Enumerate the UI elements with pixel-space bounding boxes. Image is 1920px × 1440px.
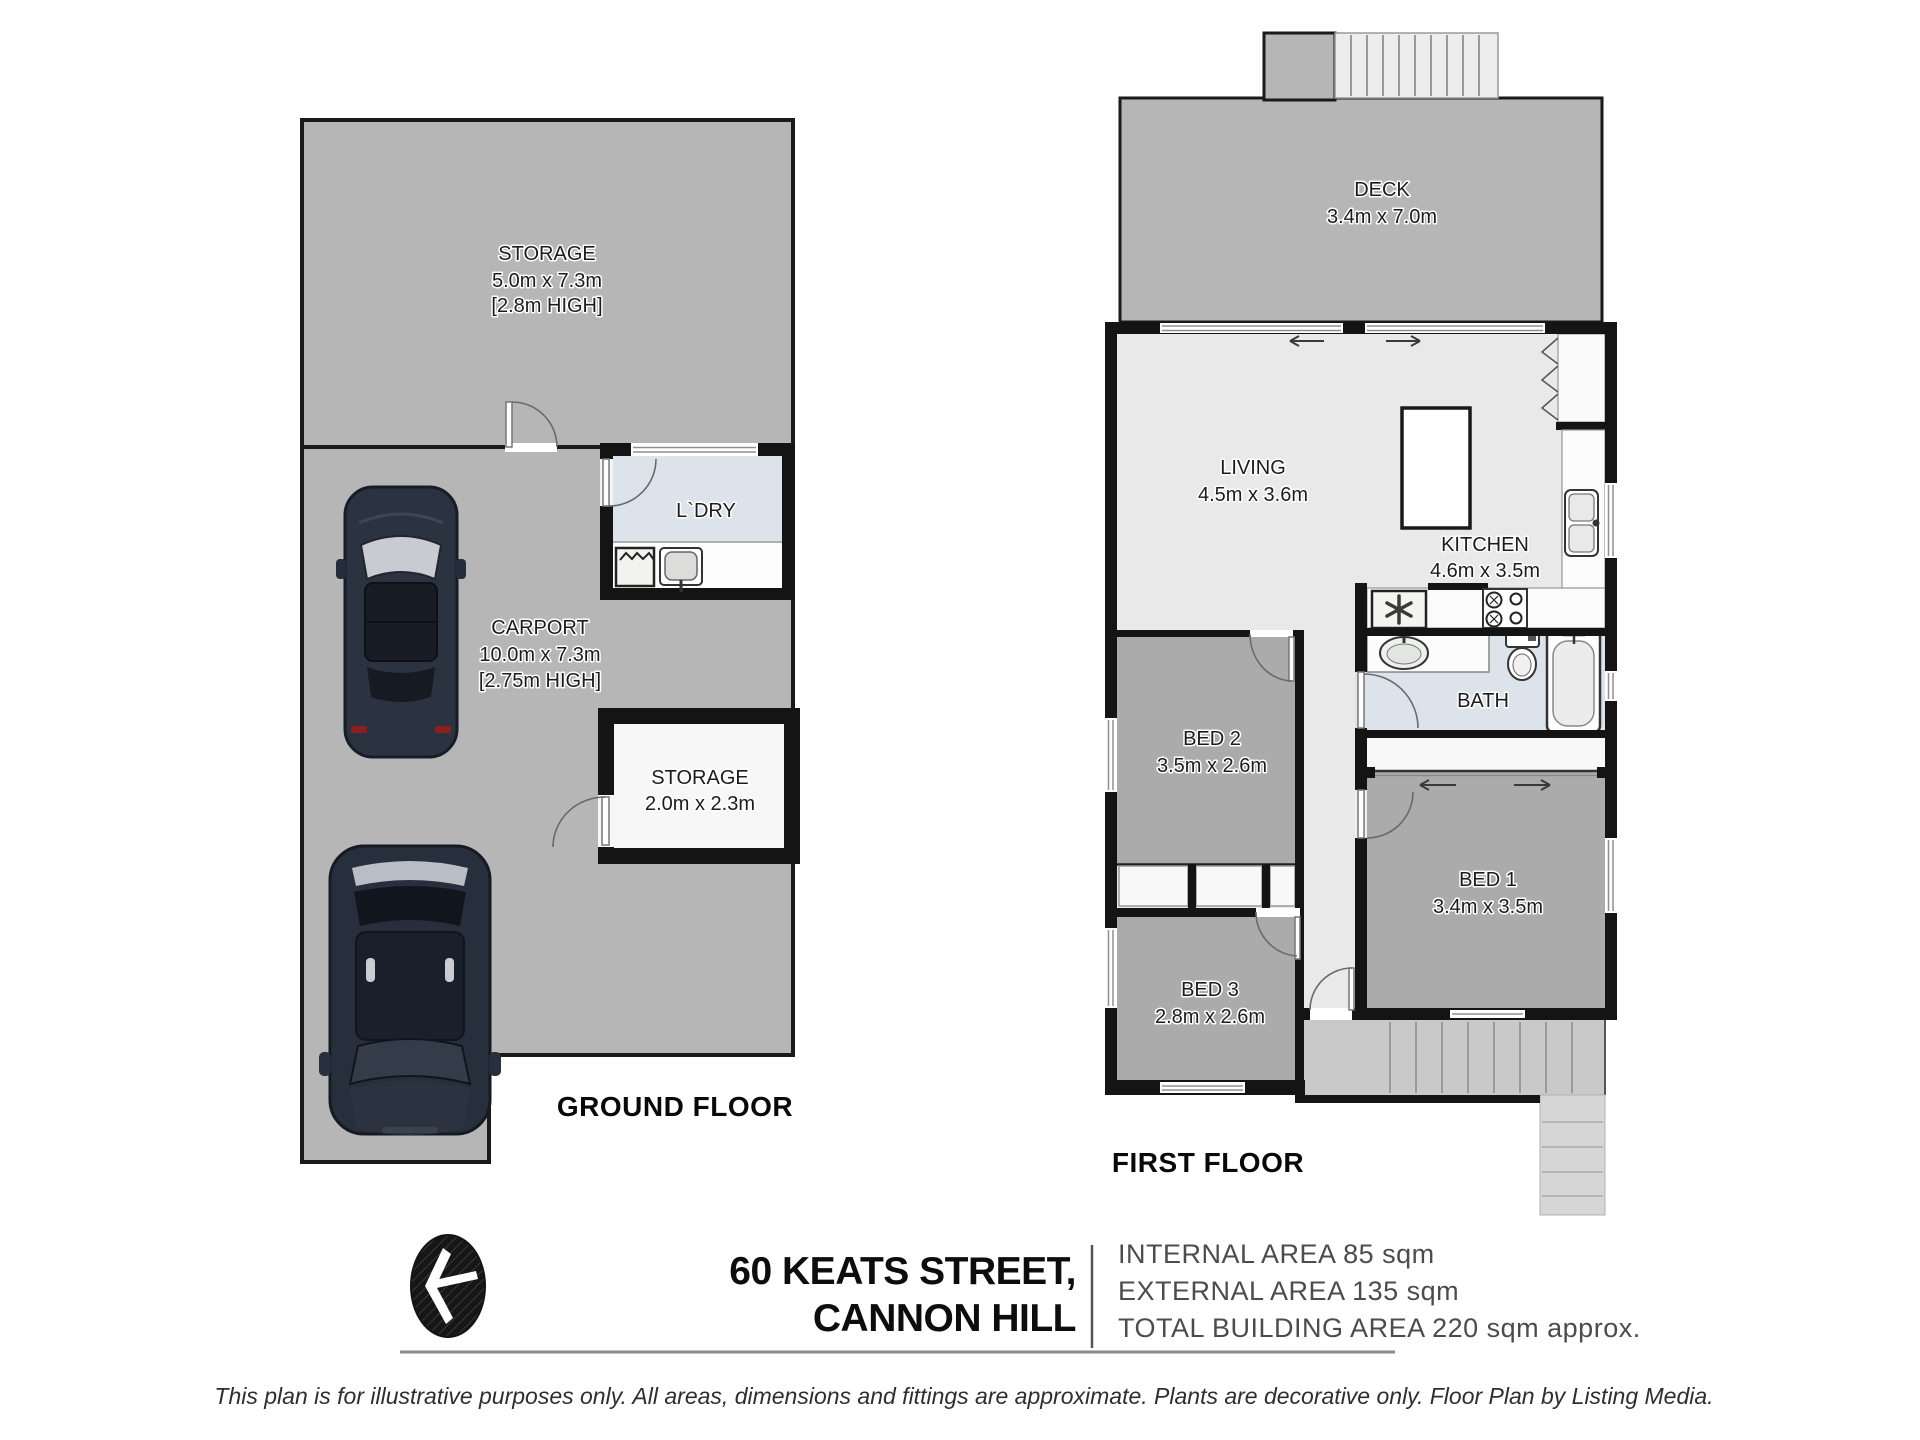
window [1605,671,1617,701]
address-line1: 60 KEATS STREET, [729,1250,1076,1293]
floorplan-page: STORAGE 5.0m x 7.3m [2.8m HIGH] CARPORT … [0,0,1920,1440]
room-dims: 3.4m x 7.0m [1327,206,1437,228]
door-opening [1250,630,1293,637]
room-dims: 4.6m x 3.5m [1430,560,1540,582]
window [1605,838,1617,913]
window [1160,1082,1245,1093]
door-leaf [1358,790,1364,838]
room-label: STORAGE [498,243,595,265]
compass-icon [411,1235,485,1337]
door-leaf [1349,968,1354,1010]
mirror [456,559,466,579]
roof [356,932,464,1040]
bed2-floor [1117,637,1295,864]
room-label: BED 1 [1459,869,1517,891]
taillight [435,726,451,733]
kitchen-sink-icon [1565,490,1600,556]
kitchen-island [1402,408,1470,528]
car-icon [319,846,501,1135]
door-opening [505,443,557,452]
room-label: L`DRY [676,500,736,522]
window [1605,483,1617,558]
room-label: BED 3 [1181,979,1239,1001]
room-dims: 3.4m x 3.5m [1433,896,1543,918]
room-label: BATH [1457,690,1509,712]
hood [350,1081,470,1135]
room-label: STORAGE [651,767,748,789]
sliding-door [1365,323,1545,333]
external-area: EXTERNAL AREA 135 sqm [1118,1276,1459,1306]
floor-title: GROUND FLOOR [557,1091,793,1122]
car-icon [336,487,466,757]
mirror [336,559,346,579]
appliance-asterisk-icon [1372,591,1426,628]
laundry-sink-icon [660,548,702,592]
deck: DECK 3.4m x 7.0m [1120,33,1602,322]
mirror [489,1052,501,1076]
windshield [361,536,441,579]
room-label: LIVING [1220,457,1286,479]
room-dims: 2.8m x 2.6m [1155,1006,1265,1028]
floor-title: FIRST FLOOR [1112,1147,1304,1178]
room-height: [2.75m HIGH] [479,670,601,692]
door-leaf [506,402,512,447]
laundry-floor [613,456,782,542]
room-label: DECK [1354,179,1410,201]
internal-stairs [1304,1020,1605,1215]
door-leaf [1289,637,1294,681]
room-dims: 5.0m x 7.3m [492,270,602,292]
first-floor-plan: DECK 3.4m x 7.0m [1105,33,1617,1215]
door-leaf [603,459,609,506]
laundry-window [631,443,758,456]
deck-landing [1264,33,1335,100]
linen [1270,866,1295,906]
stove-icon [1483,589,1527,628]
toilet-icon [1506,632,1539,680]
robe [1119,866,1188,906]
robe-closets [1117,864,1295,908]
window [1105,718,1117,792]
room-dims: 4.5m x 3.6m [1198,484,1308,506]
address-line2: CANNON HILL [813,1297,1076,1340]
floorplan-drawing: STORAGE 5.0m x 7.3m [2.8m HIGH] CARPORT … [0,0,1920,1440]
window [1105,928,1117,1008]
room-label: CARPORT [491,617,588,639]
total-area: TOTAL BUILDING AREA 220 sqm approx. [1118,1313,1641,1343]
grille [382,1127,438,1133]
bathtub-icon [1547,630,1600,732]
robe [1196,866,1262,906]
ground-floor-plan: STORAGE 5.0m x 7.3m [2.8m HIGH] CARPORT … [302,120,800,1162]
door-opening [1310,1008,1352,1020]
room-label: BED 2 [1183,728,1241,750]
room-dims: 10.0m x 7.3m [479,644,600,666]
door-opening [1256,908,1300,917]
kitchen-bench [1367,583,1605,628]
internal-area: INTERNAL AREA 85 sqm [1118,1239,1435,1269]
rear-window [354,886,466,926]
entry-stairs [1335,33,1498,98]
taillight [351,726,367,733]
room-height: [2.8m HIGH] [491,295,602,317]
room-dims: 3.5m x 2.6m [1157,755,1267,777]
room-dims: 2.0m x 2.3m [645,793,755,815]
disclaimer: This plan is for illustrative purposes o… [214,1383,1713,1409]
door-leaf [1295,917,1300,959]
washing-machine-icon [616,548,654,586]
door-handle [366,958,375,982]
door-leaf [602,797,609,845]
mirror [319,1052,331,1076]
footer: 60 KEATS STREET, CANNON HILL INTERNAL AR… [214,1235,1713,1409]
door-leaf [1358,672,1364,728]
sliding-door [1160,323,1343,333]
door-handle [445,958,454,982]
room-label: KITCHEN [1441,534,1529,556]
